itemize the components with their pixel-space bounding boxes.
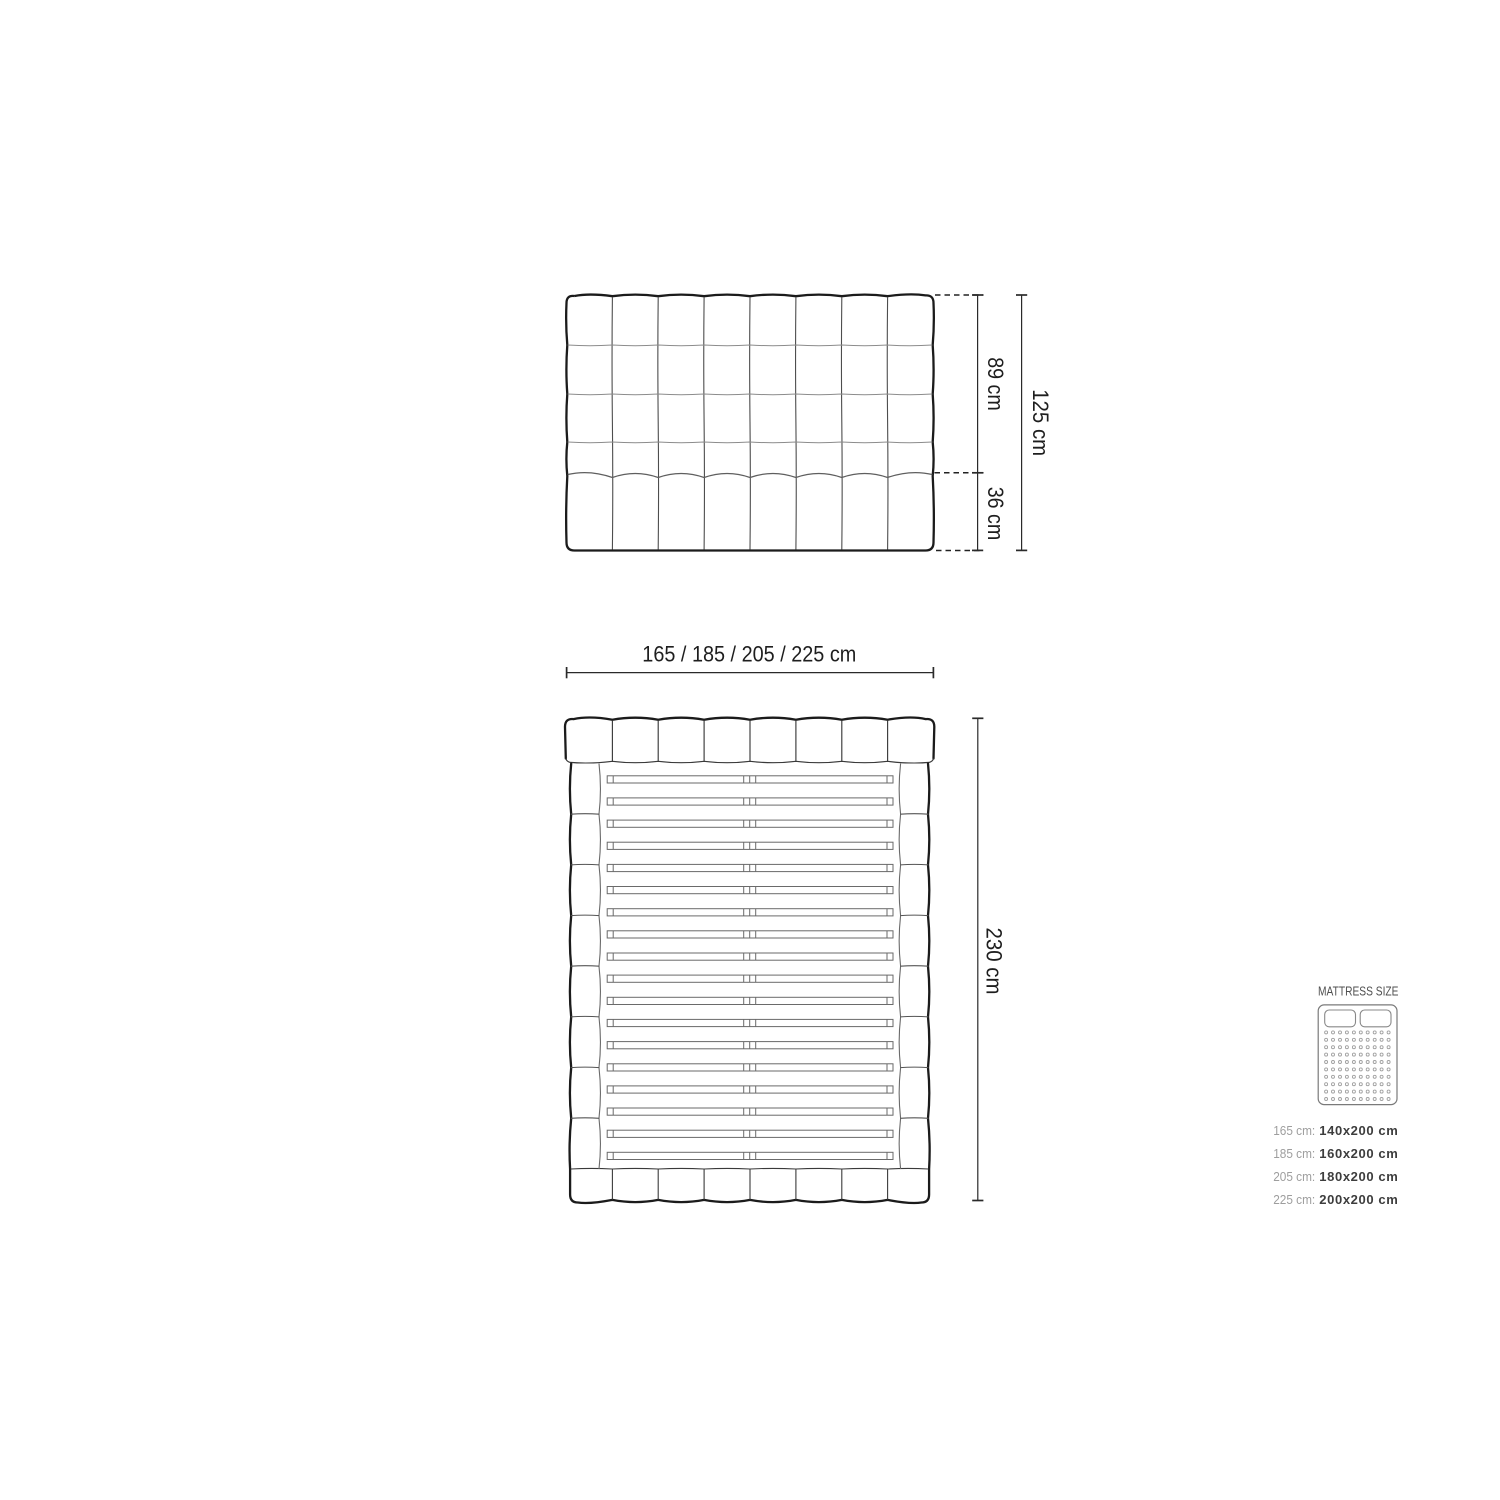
svg-text:205 cm:: 205 cm: <box>1273 1169 1315 1184</box>
svg-text:125 cm: 125 cm <box>1028 389 1053 456</box>
svg-text:MATTRESS SIZE: MATTRESS SIZE <box>1318 985 1399 999</box>
svg-text:165 cm:: 165 cm: <box>1273 1123 1315 1138</box>
svg-text:165 / 185 / 205 / 225 cm: 165 / 185 / 205 / 225 cm <box>642 642 856 667</box>
svg-text:180x200 cm: 180x200 cm <box>1319 1169 1398 1184</box>
svg-text:160x200 cm: 160x200 cm <box>1319 1146 1398 1161</box>
svg-text:89 cm: 89 cm <box>983 357 1008 411</box>
svg-text:140x200 cm: 140x200 cm <box>1319 1123 1398 1138</box>
svg-text:185 cm:: 185 cm: <box>1273 1146 1315 1161</box>
svg-text:200x200 cm: 200x200 cm <box>1319 1192 1398 1207</box>
svg-text:230 cm: 230 cm <box>982 928 1007 995</box>
svg-text:36 cm: 36 cm <box>983 487 1008 541</box>
svg-text:225 cm:: 225 cm: <box>1273 1192 1315 1207</box>
